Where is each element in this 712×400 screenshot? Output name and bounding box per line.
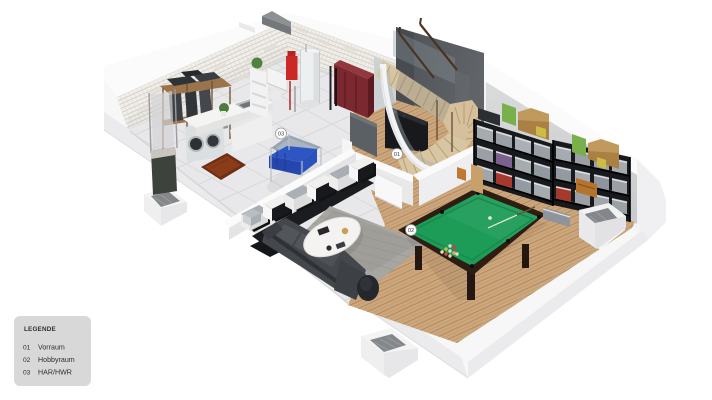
svg-text:03: 03	[278, 132, 284, 138]
svg-text:03: 03	[23, 370, 31, 377]
svg-text:LEGENDE: LEGENDE	[24, 326, 56, 333]
svg-text:Vorraum: Vorraum	[38, 344, 65, 352]
svg-text:02: 02	[23, 357, 31, 364]
svg-text:01: 01	[23, 345, 31, 352]
svg-text:02: 02	[408, 228, 414, 234]
svg-text:Hobbyraum: Hobbyraum	[38, 356, 75, 364]
svg-text:HAR/HWR: HAR/HWR	[38, 369, 72, 377]
svg-text:01: 01	[394, 152, 400, 158]
